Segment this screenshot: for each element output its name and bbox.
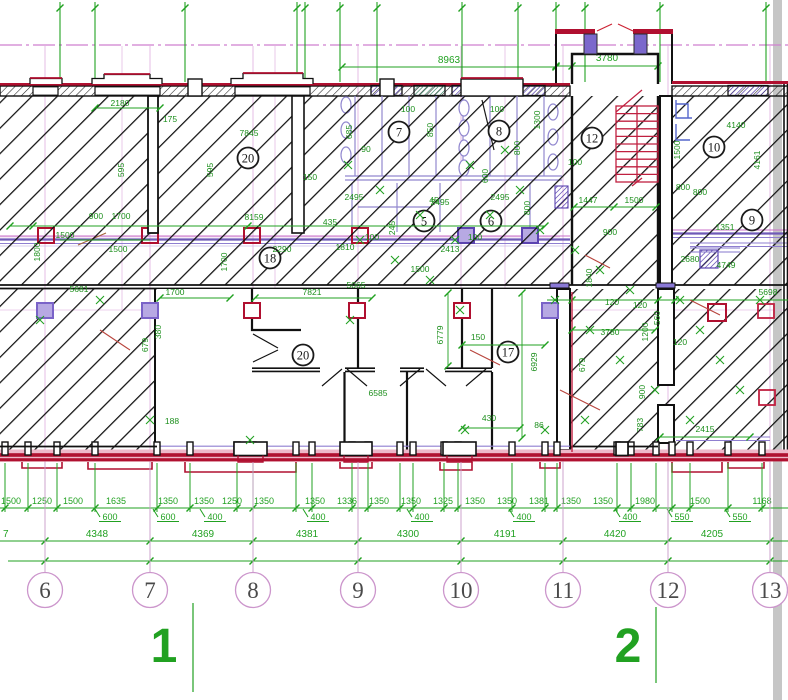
svg-text:1350: 1350 — [561, 496, 581, 506]
svg-text:7821: 7821 — [303, 287, 322, 297]
svg-text:6929: 6929 — [529, 352, 539, 371]
svg-text:6585: 6585 — [369, 388, 388, 398]
svg-text:120: 120 — [673, 337, 687, 347]
svg-text:1800: 1800 — [32, 242, 42, 261]
svg-text:800: 800 — [693, 187, 707, 197]
svg-text:20: 20 — [297, 349, 310, 363]
svg-text:7: 7 — [396, 126, 402, 140]
svg-text:435: 435 — [323, 217, 337, 227]
svg-text:800: 800 — [522, 201, 532, 215]
svg-text:1350: 1350 — [305, 496, 325, 506]
svg-text:4369: 4369 — [192, 529, 215, 540]
svg-text:1500: 1500 — [109, 244, 128, 254]
svg-text:4749: 4749 — [717, 260, 736, 270]
svg-text:1250: 1250 — [222, 496, 242, 506]
svg-text:1350: 1350 — [194, 496, 214, 506]
svg-text:595: 595 — [205, 163, 215, 177]
svg-text:100: 100 — [401, 104, 415, 114]
svg-text:400: 400 — [310, 512, 325, 522]
svg-text:188: 188 — [165, 416, 179, 426]
svg-text:150: 150 — [303, 172, 317, 182]
svg-text:5065: 5065 — [347, 280, 366, 290]
svg-text:900: 900 — [637, 385, 647, 399]
svg-text:150: 150 — [471, 332, 485, 342]
svg-text:900: 900 — [603, 227, 617, 237]
svg-text:1635: 1635 — [106, 496, 126, 506]
svg-text:2413: 2413 — [441, 244, 460, 254]
svg-text:1980: 1980 — [635, 496, 655, 506]
svg-text:175: 175 — [163, 114, 177, 124]
svg-text:1447: 1447 — [579, 195, 598, 205]
svg-text:400: 400 — [622, 512, 637, 522]
svg-text:1350: 1350 — [401, 496, 421, 506]
svg-text:850: 850 — [425, 123, 435, 137]
svg-text:2495: 2495 — [491, 192, 510, 202]
svg-text:1810: 1810 — [336, 242, 355, 252]
svg-text:1336: 1336 — [337, 496, 357, 506]
svg-text:685: 685 — [344, 125, 354, 139]
svg-text:1700: 1700 — [166, 287, 185, 297]
svg-text:1350: 1350 — [158, 496, 178, 506]
svg-text:4140: 4140 — [727, 120, 746, 130]
svg-text:4348: 4348 — [86, 529, 109, 540]
svg-text:8: 8 — [247, 578, 259, 603]
svg-text:1350: 1350 — [465, 496, 485, 506]
svg-text:1168: 1168 — [752, 496, 771, 506]
svg-text:595: 595 — [116, 163, 126, 177]
svg-text:4191: 4191 — [494, 529, 517, 540]
svg-text:8963: 8963 — [438, 55, 461, 66]
svg-text:600: 600 — [102, 512, 117, 522]
svg-text:20: 20 — [242, 152, 255, 166]
svg-text:2680: 2680 — [681, 254, 700, 264]
svg-text:900: 900 — [89, 211, 103, 221]
svg-text:90: 90 — [361, 144, 371, 154]
svg-text:1500: 1500 — [672, 140, 682, 159]
svg-text:120: 120 — [633, 300, 647, 310]
svg-text:550: 550 — [732, 512, 747, 522]
svg-text:7845: 7845 — [240, 128, 259, 138]
svg-text:86: 86 — [534, 420, 544, 430]
svg-text:1200: 1200 — [640, 322, 650, 341]
svg-text:100: 100 — [468, 232, 482, 242]
svg-text:1500: 1500 — [1, 496, 21, 506]
svg-text:13: 13 — [759, 578, 782, 603]
svg-text:3780: 3780 — [601, 327, 620, 337]
svg-text:4420: 4420 — [604, 529, 627, 540]
svg-text:2415: 2415 — [696, 424, 715, 434]
svg-text:400: 400 — [516, 512, 531, 522]
svg-text:100: 100 — [568, 157, 582, 167]
svg-text:600: 600 — [160, 512, 175, 522]
svg-text:679: 679 — [577, 358, 587, 372]
svg-text:800: 800 — [676, 182, 690, 192]
svg-text:1381: 1381 — [529, 496, 549, 506]
svg-text:550: 550 — [674, 512, 689, 522]
svg-text:1325: 1325 — [433, 496, 453, 506]
svg-text:679: 679 — [140, 338, 150, 352]
svg-text:1500: 1500 — [625, 195, 644, 205]
svg-text:1700: 1700 — [219, 252, 229, 271]
svg-text:1350: 1350 — [254, 496, 274, 506]
svg-text:1300: 1300 — [532, 110, 542, 129]
svg-text:600: 600 — [480, 169, 490, 183]
svg-text:4300: 4300 — [397, 529, 420, 540]
svg-text:1500: 1500 — [690, 496, 710, 506]
svg-text:120: 120 — [605, 297, 619, 307]
svg-text:1351: 1351 — [716, 222, 735, 232]
svg-text:10: 10 — [708, 141, 721, 155]
svg-text:10: 10 — [450, 578, 473, 603]
svg-text:17: 17 — [502, 346, 515, 360]
svg-text:4205: 4205 — [701, 529, 724, 540]
svg-text:6779: 6779 — [435, 325, 445, 344]
svg-text:1700: 1700 — [112, 211, 131, 221]
svg-text:2495: 2495 — [431, 197, 450, 207]
svg-text:1350: 1350 — [497, 496, 517, 506]
svg-text:1500: 1500 — [56, 230, 75, 240]
svg-text:245: 245 — [387, 221, 397, 235]
svg-text:560: 560 — [652, 311, 662, 325]
svg-text:380: 380 — [153, 325, 163, 339]
svg-text:1500: 1500 — [63, 496, 83, 506]
svg-text:1500: 1500 — [411, 264, 430, 274]
svg-text:430: 430 — [482, 413, 496, 423]
svg-text:1840: 1840 — [584, 268, 594, 287]
svg-text:100: 100 — [490, 104, 504, 114]
svg-text:9: 9 — [749, 214, 755, 228]
svg-text:1350: 1350 — [369, 496, 389, 506]
svg-text:2180: 2180 — [111, 98, 130, 108]
svg-text:400: 400 — [414, 512, 429, 522]
svg-text:11: 11 — [552, 578, 574, 603]
svg-text:400: 400 — [207, 512, 222, 522]
svg-text:8: 8 — [496, 125, 502, 139]
svg-text:12: 12 — [657, 578, 680, 603]
svg-text:4161: 4161 — [752, 150, 762, 169]
svg-text:800: 800 — [512, 141, 522, 155]
svg-text:5681: 5681 — [70, 284, 89, 294]
svg-text:1: 1 — [151, 620, 178, 673]
svg-text:4381: 4381 — [296, 529, 319, 540]
svg-text:7: 7 — [144, 578, 156, 603]
svg-text:2: 2 — [615, 620, 642, 673]
svg-text:2495: 2495 — [345, 192, 364, 202]
svg-text:1350: 1350 — [593, 496, 613, 506]
svg-text:9: 9 — [352, 578, 364, 603]
svg-text:6: 6 — [39, 578, 51, 603]
svg-text:7: 7 — [3, 529, 9, 540]
svg-text:12: 12 — [586, 132, 599, 146]
svg-text:8159: 8159 — [245, 212, 264, 222]
svg-text:2290: 2290 — [273, 244, 292, 254]
svg-text:5698: 5698 — [759, 287, 778, 297]
svg-text:100: 100 — [365, 232, 379, 242]
svg-text:783: 783 — [635, 418, 645, 432]
svg-text:1250: 1250 — [32, 496, 52, 506]
